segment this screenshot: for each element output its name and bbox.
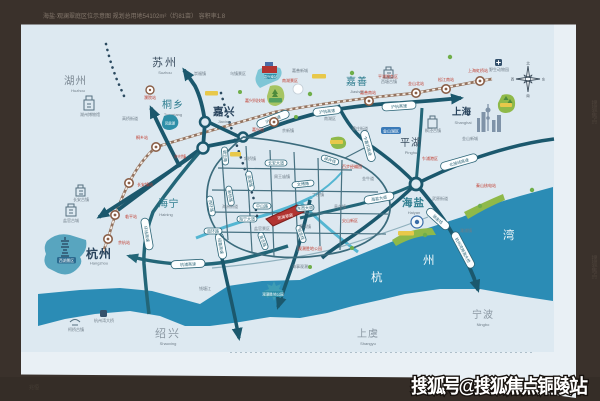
svg-text:搜狐焦点: 搜狐焦点 [590,99,597,125]
svg-text:乌镇景区: 乌镇景区 [230,70,246,76]
svg-text:嘉兴: 嘉兴 [212,105,235,118]
svg-text:野生动物园: 野生动物园 [489,66,509,72]
svg-text:Jiashan: Jiashan [350,89,364,94]
svg-text:嘉善: 嘉善 [346,75,368,88]
svg-text:丁桥镇: 丁桥镇 [312,191,324,197]
svg-text:Haining: Haining [159,212,173,217]
svg-text:嘉善新城: 嘉善新城 [292,67,308,73]
svg-text:东: 东 [542,77,546,82]
svg-text:Jiaxing: Jiaxing [218,119,230,124]
svg-text:Ningbo: Ningbo [477,322,490,327]
svg-text:Pinghu: Pinghu [405,150,417,155]
svg-text:上虞: 上虞 [357,327,379,340]
svg-text:长安古镇: 长安古镇 [73,196,89,202]
svg-text:Shanghai: Shanghai [455,120,472,125]
svg-text:钱塘江: 钱塘江 [199,285,211,291]
svg-text:曹庄街道: 曹庄街道 [352,125,368,131]
svg-text:长安大道: 长安大道 [268,159,284,165]
svg-text:金山新城: 金山新城 [462,135,478,141]
svg-text:海盐: 海盐 [402,196,425,209]
svg-text:武原街道: 武原街道 [432,195,448,201]
svg-text:余新镇: 余新镇 [282,127,294,133]
svg-text:盐官古城: 盐官古城 [63,217,79,223]
svg-text:崇福镇: 崇福镇 [194,70,206,76]
svg-text:金山北站: 金山北站 [408,80,424,86]
svg-text:临平站: 临平站 [125,213,137,219]
svg-text:百步经编园: 百步经编园 [342,163,362,169]
svg-text:桐乡站: 桐乡站 [136,134,148,140]
svg-text:Haiyan: Haiyan [408,210,420,215]
svg-text:文博路: 文博路 [297,180,310,187]
svg-text:西: 西 [511,78,515,82]
svg-text:嘉兴南站: 嘉兴南站 [264,74,278,79]
svg-text:周王庙镇: 周王庙镇 [274,173,290,179]
svg-text:Suzhou: Suzhou [158,70,172,75]
svg-text:南环路: 南环路 [207,227,219,233]
svg-text:上海虹桥站: 上海虹桥站 [468,67,488,73]
svg-text:许村镇: 许村镇 [174,153,186,159]
svg-text:海宁: 海宁 [158,197,179,210]
svg-text:沪杭高速: 沪杭高速 [391,102,407,109]
svg-text:宁波: 宁波 [472,308,494,321]
svg-text:Hangzhou: Hangzhou [90,261,108,266]
svg-text:上海: 上海 [452,106,472,118]
svg-text:南湖景区: 南湖景区 [282,77,298,83]
svg-text:平湖服务区: 平湖服务区 [378,73,398,79]
svg-text:绍兴: 绍兴 [155,326,181,340]
svg-text:湖州: 湖州 [64,75,87,87]
svg-text:斜桥镇: 斜桥镇 [244,155,256,161]
svg-text:西湖景区: 西湖景区 [59,258,74,263]
svg-text:东西大道: 东西大道 [297,204,313,211]
svg-text:搜狐焦点: 搜狐焦点 [590,254,597,280]
svg-text:黄湾镇: 黄湾镇 [299,223,311,229]
svg-text:兆恒: 兆恒 [29,384,39,391]
svg-text:南: 南 [526,93,530,98]
svg-text:桐乡: 桐乡 [162,98,184,111]
svg-text:杭: 杭 [371,270,383,284]
svg-text:盐官景区: 盐官景区 [254,225,270,231]
svg-text:凤凰湖: 凤凰湖 [165,121,176,126]
svg-text:杭州湾大桥: 杭州湾大桥 [94,317,114,323]
svg-text:枫泾古镇: 枫泾古镇 [425,127,441,133]
svg-text:中山路: 中山路 [256,202,268,208]
svg-text:苏州: 苏州 [152,56,178,69]
svg-text:观潮胜地公园: 观潮胜地公园 [298,245,322,251]
svg-text:余杭站: 余杭站 [118,239,130,245]
svg-text:长安镇站: 长安镇站 [137,181,153,187]
svg-text:杭浦高速: 杭浦高速 [180,260,196,267]
svg-text:州: 州 [423,254,435,267]
svg-text:平湖: 平湖 [400,137,422,149]
svg-text:濮院站: 濮院站 [144,94,156,100]
svg-text:乍浦港区: 乍浦港区 [422,155,438,161]
svg-text:观潮胜地公园: 观潮胜地公园 [262,292,284,297]
svg-text:杭州: 杭州 [86,246,112,261]
svg-text:秦山核电站: 秦山核电站 [476,182,496,188]
svg-text:碧云路: 碧云路 [222,150,229,162]
svg-text:海盐·观澜翠庭区位示意图 规划总用地54102m²（约81亩: 海盐·观澜翠庭区位示意图 规划总用地54102m²（约81亩） 容积率1.8 [43,12,226,20]
svg-text:尖山新区: 尖山新区 [342,217,358,223]
svg-text:嘉兴科技城: 嘉兴科技城 [245,97,265,103]
svg-text:海宁大道: 海宁大道 [239,215,255,221]
svg-text:金牛道: 金牛道 [362,175,374,181]
svg-text:嘉兴站: 嘉兴站 [252,126,264,132]
svg-text:南湖区: 南湖区 [324,115,336,121]
svg-text:Shaoxing: Shaoxing [160,341,177,346]
svg-text:海洲街道: 海洲街道 [222,203,238,209]
svg-text:高桥街道: 高桥街道 [122,115,138,121]
svg-text:澉浦镇: 澉浦镇 [460,227,472,233]
svg-text:柯桥古镇: 柯桥古镇 [68,326,84,332]
svg-text:北: 北 [526,61,530,66]
svg-text:搜狐号@搜狐焦点铜陵站: 搜狐号@搜狐焦点铜陵站 [411,375,588,398]
svg-text:湖州博物馆: 湖州博物馆 [80,111,100,117]
svg-text:海事观潮: 海事观潮 [292,263,308,269]
svg-text:松江南站: 松江南站 [438,76,454,82]
svg-text:湾: 湾 [503,228,515,242]
svg-text:Huzhou: Huzhou [71,88,85,93]
svg-text:Shangyu: Shangyu [360,341,376,346]
svg-text:袁花镇: 袁花镇 [334,203,346,209]
svg-text:金山湖区: 金山湖区 [383,127,399,133]
